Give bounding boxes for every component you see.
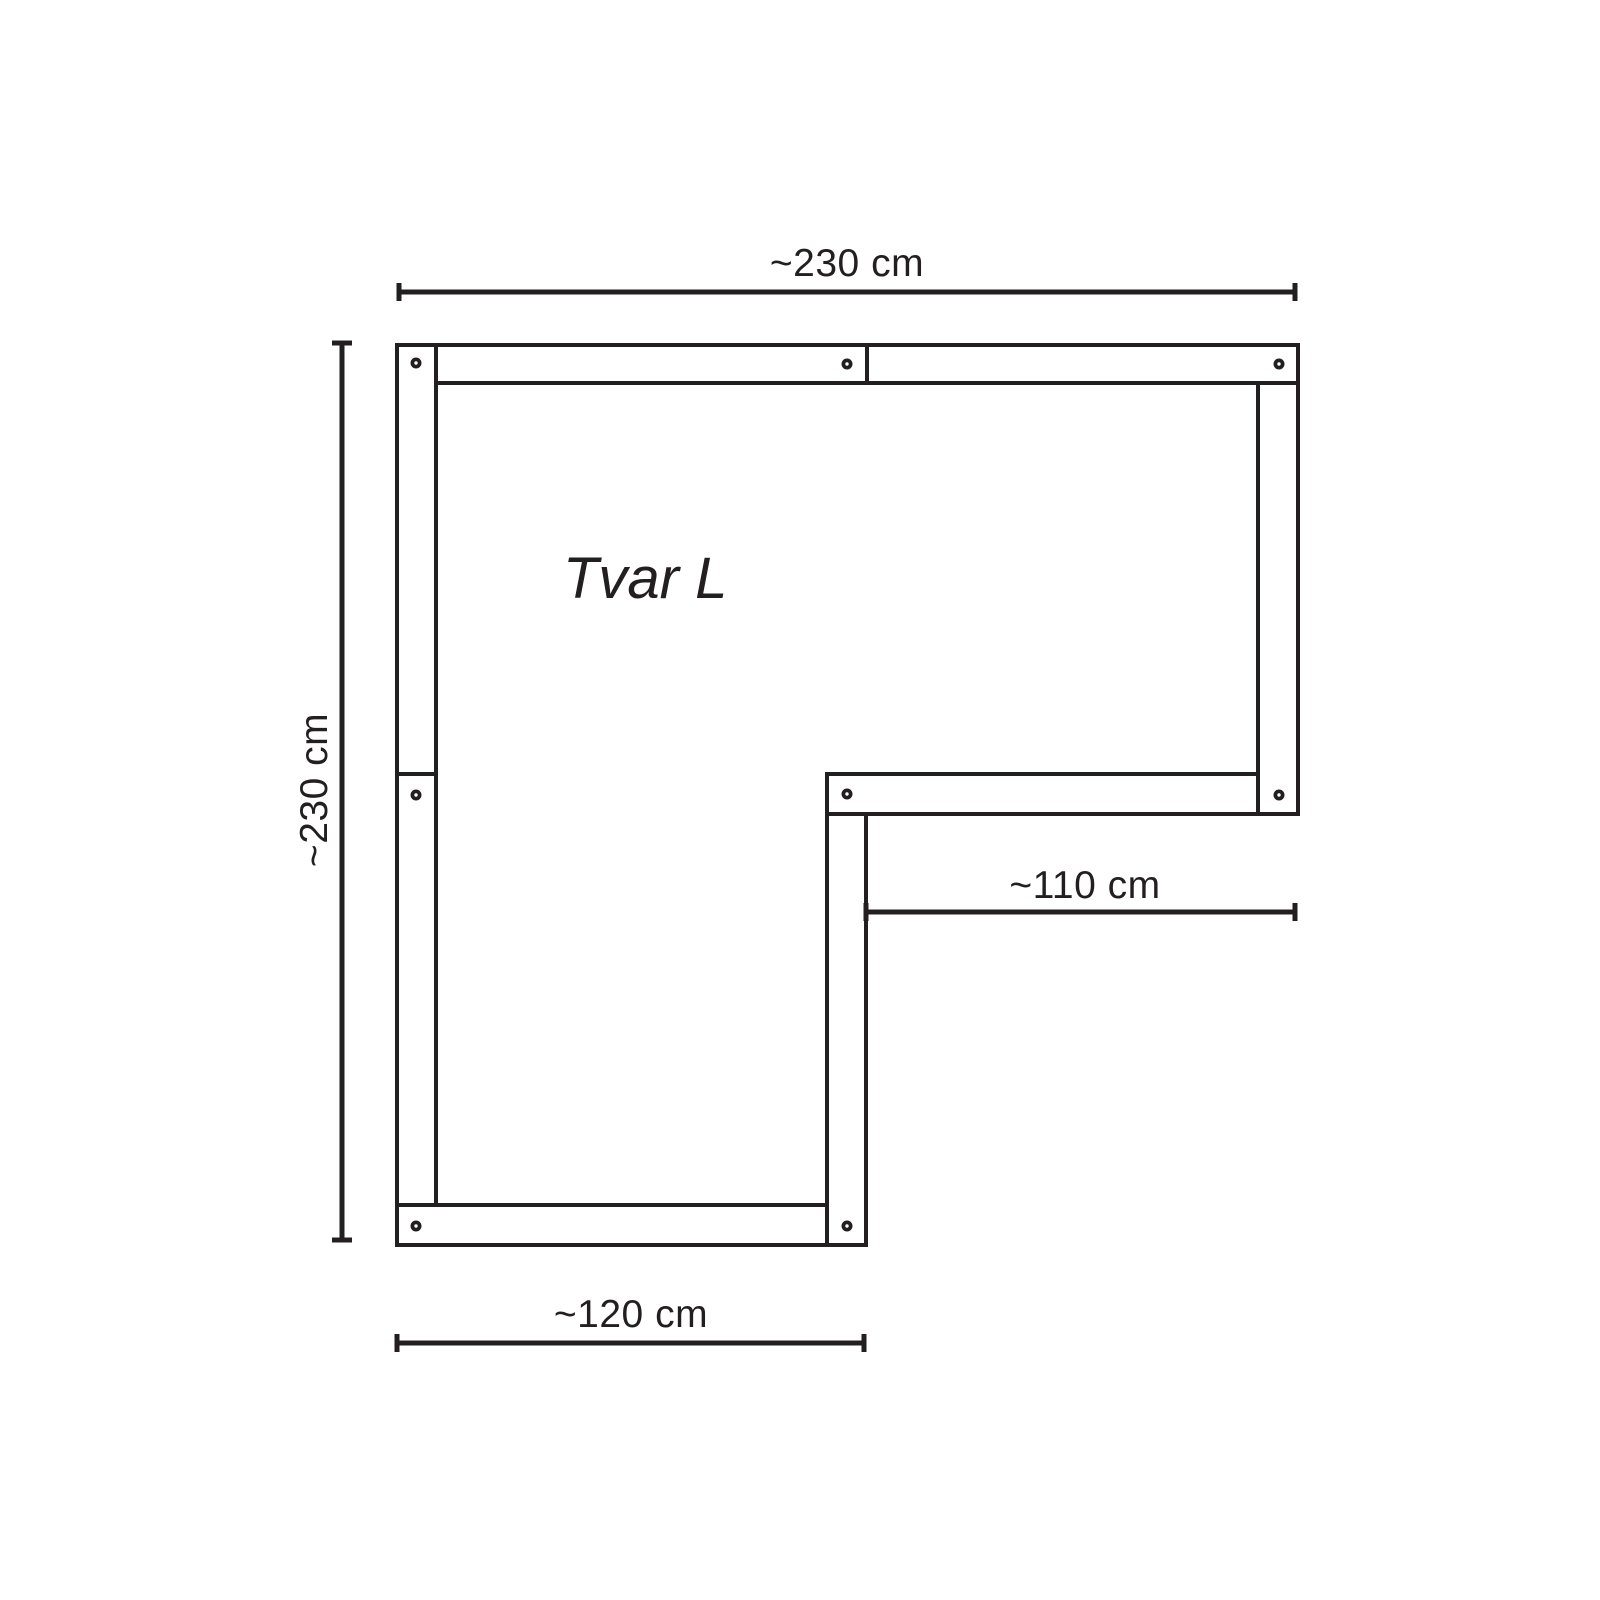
dimension-label-left: ~230 cm: [293, 713, 336, 867]
beam-arm-right: [827, 814, 866, 1245]
beam-bottom: [397, 1205, 827, 1245]
screw-hole: [1277, 793, 1280, 796]
beam-left-lower: [397, 774, 436, 1205]
beam-top-left: [436, 345, 867, 383]
screw-hole: [1277, 362, 1280, 365]
l-shape-plan-diagram: ~230 cm ~230 cm ~110 cm ~120 cm Tvar L: [0, 0, 1600, 1600]
shape-title: Tvar L: [563, 546, 727, 611]
dimension-label-inner-right: ~110 cm: [1009, 864, 1160, 907]
screw-hole: [414, 361, 417, 364]
screw-hole: [414, 1224, 417, 1227]
beam-top-right: [867, 345, 1298, 383]
screw-hole: [414, 793, 417, 796]
beam-right: [1258, 383, 1298, 814]
dimension-label-bottom: ~120 cm: [554, 1293, 708, 1336]
dimension-lines: [332, 283, 1295, 1352]
screw-hole: [845, 792, 848, 795]
beam-middle: [827, 774, 1258, 814]
screw-hole: [845, 1224, 848, 1227]
dimension-label-top: ~230 cm: [770, 242, 924, 285]
screw-hole: [845, 362, 848, 365]
beam-left-upper: [397, 345, 436, 774]
